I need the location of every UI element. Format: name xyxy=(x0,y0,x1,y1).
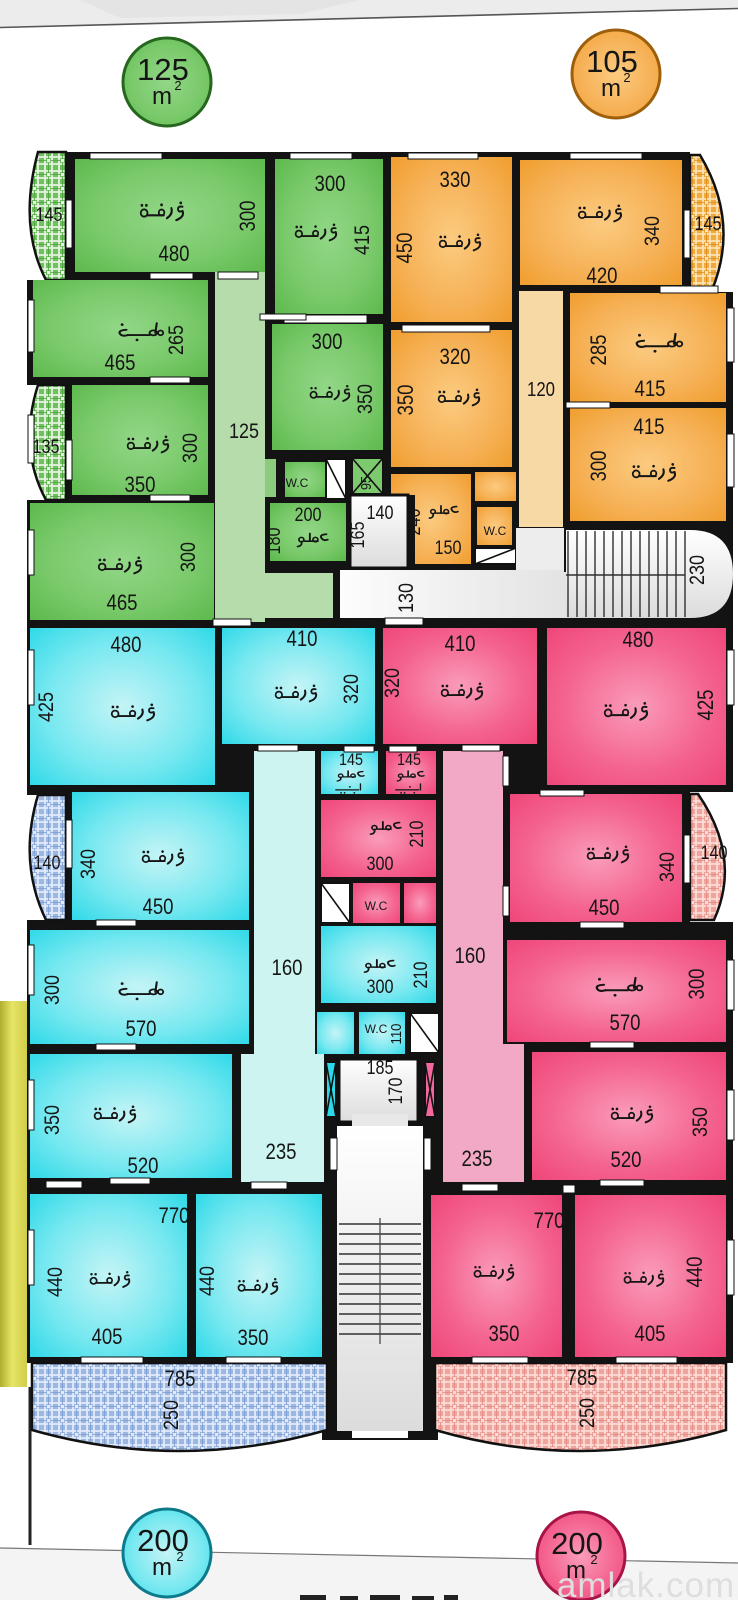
svg-text:150: 150 xyxy=(435,538,462,559)
svg-text:320: 320 xyxy=(381,668,404,698)
svg-text:145: 145 xyxy=(36,205,63,226)
svg-text:405: 405 xyxy=(635,1321,666,1346)
svg-text:285: 285 xyxy=(586,335,611,366)
svg-text:340: 340 xyxy=(77,849,100,879)
svg-text:570: 570 xyxy=(126,1016,157,1041)
svg-text:2: 2 xyxy=(174,78,181,93)
svg-text:m: m xyxy=(152,83,172,110)
svg-text:170: 170 xyxy=(386,1078,407,1105)
svg-text:160: 160 xyxy=(272,955,303,980)
svg-text:W.C: W.C xyxy=(286,476,309,490)
svg-text:410: 410 xyxy=(445,631,476,656)
svg-text:140: 140 xyxy=(701,843,728,864)
svg-text:300: 300 xyxy=(179,433,202,463)
svg-text:340: 340 xyxy=(641,216,664,246)
svg-text:300: 300 xyxy=(586,451,611,482)
svg-text:165: 165 xyxy=(348,522,369,549)
svg-text:450: 450 xyxy=(589,895,620,920)
svg-text:210: 210 xyxy=(411,962,432,989)
svg-text:350: 350 xyxy=(393,385,418,416)
svg-text:770: 770 xyxy=(159,1203,190,1228)
svg-text:480: 480 xyxy=(111,632,142,657)
svg-text:300: 300 xyxy=(41,975,64,1005)
svg-text:320: 320 xyxy=(340,674,363,704)
svg-text:415: 415 xyxy=(634,414,665,439)
svg-text:770: 770 xyxy=(534,1208,565,1233)
svg-text:W.C: W.C xyxy=(365,1022,388,1036)
svg-text:230: 230 xyxy=(686,555,709,585)
svg-text:520: 520 xyxy=(611,1147,642,1172)
svg-text:410: 410 xyxy=(287,626,318,651)
svg-text:140: 140 xyxy=(34,853,61,874)
svg-text:140: 140 xyxy=(367,503,394,524)
svg-text:210: 210 xyxy=(407,821,428,848)
svg-text:405: 405 xyxy=(92,1324,123,1349)
svg-text:235: 235 xyxy=(266,1139,297,1164)
svg-text:425: 425 xyxy=(693,690,718,721)
svg-text:415: 415 xyxy=(351,225,374,255)
svg-text:125: 125 xyxy=(229,420,259,443)
svg-text:440: 440 xyxy=(196,1266,219,1296)
svg-text:350: 350 xyxy=(354,384,377,414)
svg-text:340: 340 xyxy=(656,852,679,882)
svg-text:130: 130 xyxy=(395,583,418,613)
svg-text:240: 240 xyxy=(404,509,425,536)
svg-text:440: 440 xyxy=(44,1267,67,1297)
svg-text:300: 300 xyxy=(367,854,394,875)
svg-text:785: 785 xyxy=(165,1366,196,1391)
svg-text:465: 465 xyxy=(105,350,136,375)
svg-text:110: 110 xyxy=(388,1024,405,1045)
svg-text:W.C: W.C xyxy=(484,524,507,538)
svg-text:350: 350 xyxy=(689,1107,712,1137)
svg-text:160: 160 xyxy=(455,943,486,968)
svg-text:m: m xyxy=(601,75,621,102)
svg-text:300: 300 xyxy=(235,201,260,232)
svg-text:350: 350 xyxy=(125,472,156,497)
svg-text:570: 570 xyxy=(610,1010,641,1035)
svg-text:250: 250 xyxy=(576,1398,599,1428)
svg-text:450: 450 xyxy=(143,894,174,919)
svg-text:2: 2 xyxy=(176,1549,183,1564)
svg-text:785: 785 xyxy=(567,1365,598,1390)
svg-text:2: 2 xyxy=(623,70,630,85)
svg-text:W.C: W.C xyxy=(365,899,388,913)
svg-text:265: 265 xyxy=(165,325,188,355)
svg-text:145: 145 xyxy=(339,750,363,769)
svg-text:330: 330 xyxy=(440,167,471,192)
svg-text:2: 2 xyxy=(590,1552,597,1567)
svg-text:480: 480 xyxy=(623,627,654,652)
svg-text:145: 145 xyxy=(397,750,421,769)
svg-text:250: 250 xyxy=(160,1400,183,1430)
svg-text:m: m xyxy=(152,1554,172,1581)
svg-text:185: 185 xyxy=(367,1058,394,1079)
svg-text:135: 135 xyxy=(33,437,60,458)
svg-text:120: 120 xyxy=(527,379,555,401)
svg-text:amlak.com: amlak.com xyxy=(557,1566,735,1600)
svg-text:300: 300 xyxy=(367,977,394,998)
svg-text:440: 440 xyxy=(682,1257,707,1288)
svg-text:420: 420 xyxy=(587,263,618,288)
svg-text:415: 415 xyxy=(635,376,666,401)
svg-text:300: 300 xyxy=(315,171,346,196)
svg-text:235: 235 xyxy=(462,1146,493,1171)
svg-text:350: 350 xyxy=(489,1321,520,1346)
svg-text:480: 480 xyxy=(159,241,190,266)
svg-text:350: 350 xyxy=(238,1325,269,1350)
svg-text:200: 200 xyxy=(295,505,322,526)
svg-text:180: 180 xyxy=(264,528,285,555)
svg-text:450: 450 xyxy=(392,233,417,264)
svg-text:520: 520 xyxy=(128,1153,159,1178)
svg-text:95: 95 xyxy=(358,476,375,490)
svg-text:300: 300 xyxy=(312,329,343,354)
svg-text:300: 300 xyxy=(177,542,200,572)
svg-text:320: 320 xyxy=(440,344,471,369)
svg-text:465: 465 xyxy=(107,590,138,615)
svg-text:300: 300 xyxy=(684,969,709,1000)
svg-text:350: 350 xyxy=(41,1105,64,1135)
svg-text:425: 425 xyxy=(35,692,58,722)
svg-text:145: 145 xyxy=(695,214,722,235)
